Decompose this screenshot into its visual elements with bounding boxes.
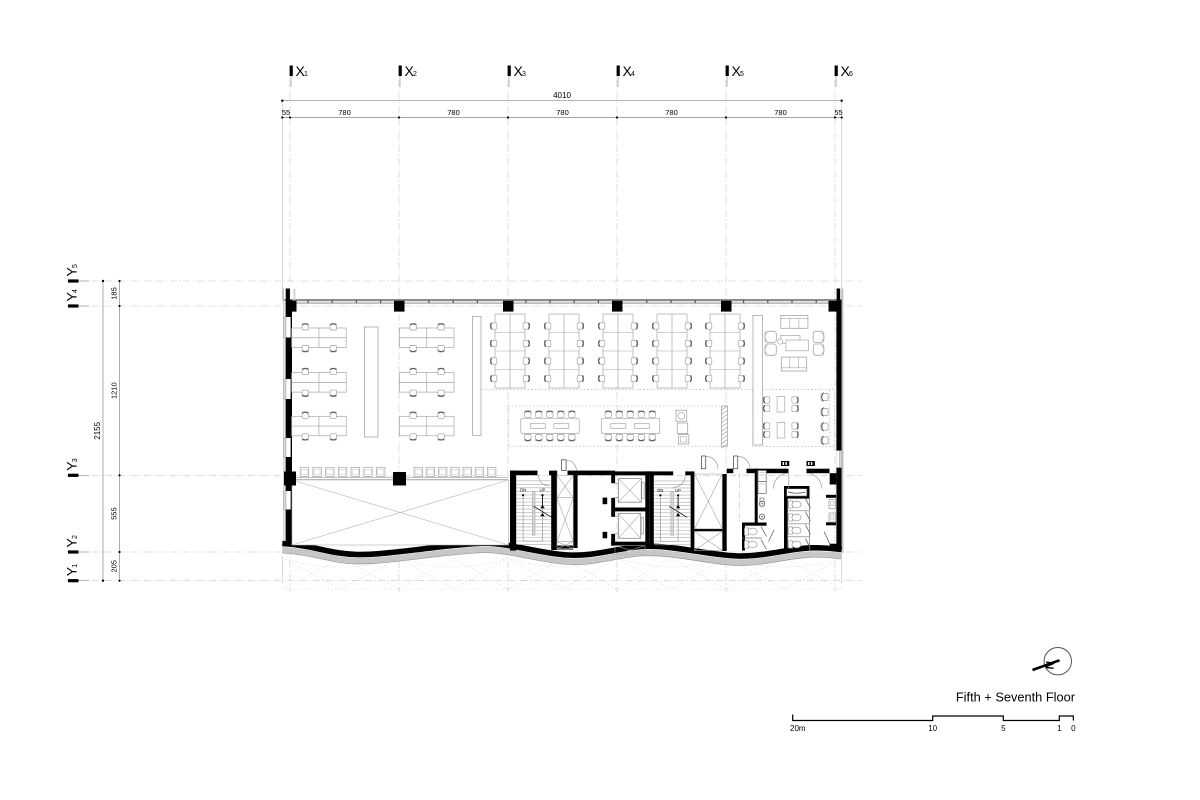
svg-text:780: 780 xyxy=(338,108,351,117)
svg-text:55: 55 xyxy=(282,108,290,117)
svg-text:4: 4 xyxy=(72,289,79,293)
svg-text:UP: UP xyxy=(540,488,546,493)
svg-text:10: 10 xyxy=(928,724,937,733)
svg-text:55: 55 xyxy=(834,108,842,117)
svg-text:555: 555 xyxy=(110,507,119,520)
svg-text:780: 780 xyxy=(774,108,787,117)
svg-text:3: 3 xyxy=(72,458,79,462)
svg-text:185: 185 xyxy=(110,287,119,300)
svg-text:4010: 4010 xyxy=(553,91,571,100)
svg-text:1: 1 xyxy=(304,71,308,78)
svg-text:1210: 1210 xyxy=(110,382,119,399)
svg-text:DN: DN xyxy=(657,488,663,493)
svg-text:4: 4 xyxy=(631,71,635,78)
svg-text:5: 5 xyxy=(1001,724,1006,733)
svg-text:2155: 2155 xyxy=(93,421,102,439)
svg-text:205: 205 xyxy=(110,560,119,573)
svg-text:UP: UP xyxy=(675,488,681,493)
svg-text:2: 2 xyxy=(72,535,79,539)
svg-text:1: 1 xyxy=(72,564,79,568)
svg-text:DN: DN xyxy=(520,488,526,493)
svg-text:3: 3 xyxy=(522,71,526,78)
svg-text:5: 5 xyxy=(740,71,744,78)
svg-text:780: 780 xyxy=(447,108,460,117)
svg-text:5: 5 xyxy=(72,264,79,268)
svg-text:0: 0 xyxy=(1071,724,1076,733)
svg-text:6: 6 xyxy=(849,71,853,78)
svg-text:1: 1 xyxy=(1057,724,1062,733)
svg-text:2: 2 xyxy=(413,71,417,78)
svg-text:20m: 20m xyxy=(790,724,806,733)
svg-text:780: 780 xyxy=(556,108,569,117)
svg-text:N: N xyxy=(1042,661,1055,670)
svg-text:Fifth + Seventh Floor: Fifth + Seventh Floor xyxy=(956,690,1076,705)
svg-text:780: 780 xyxy=(665,108,678,117)
